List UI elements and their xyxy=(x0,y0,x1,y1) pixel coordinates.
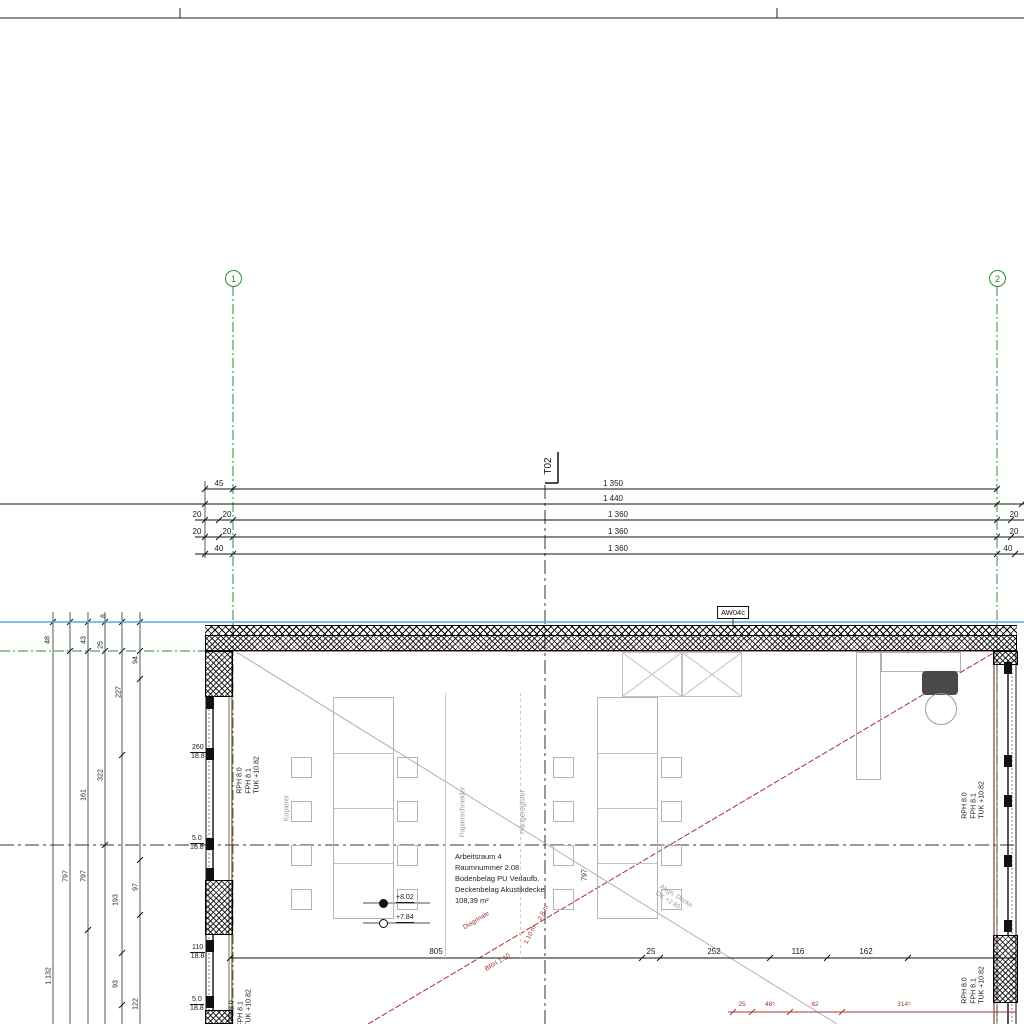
grid-axis-bubble-2: 2 xyxy=(989,270,1006,287)
window-frame xyxy=(206,868,214,880)
dim-label: 20 xyxy=(193,511,202,519)
chain-dim: 122 xyxy=(133,998,140,1010)
window-frame xyxy=(1004,795,1012,807)
dim-label: 1 360 xyxy=(608,511,628,519)
sill-bottom: 18.8 xyxy=(190,953,205,961)
wall-label-line: TUK +10.82 xyxy=(978,966,987,1004)
wall-height-label: RPH 8.0 FPH 8.1 TUK +10.82 xyxy=(236,756,262,794)
window-frame xyxy=(1004,662,1012,674)
projection-line xyxy=(445,693,446,958)
level-value-rfl: +7.84 xyxy=(396,914,414,923)
chain-dim: 43 xyxy=(81,636,88,644)
sill-note: 110 18.8 xyxy=(190,944,205,961)
sill-note: 5.0 18.8 xyxy=(190,996,204,1013)
room-ceiling: Deckenbelag Akustikdecke xyxy=(455,884,545,895)
window-frame xyxy=(206,838,214,850)
sill-top: 110 xyxy=(190,944,205,953)
section-label: T02 xyxy=(544,457,554,474)
sill-bottom: 18.8 xyxy=(190,844,204,852)
chain-dim: 25 xyxy=(98,641,105,649)
sill-top: 260 xyxy=(190,744,206,753)
red-dim: 314⁵ xyxy=(897,1002,911,1009)
equipment-label-copier: Kopierer xyxy=(284,795,291,821)
window-frame xyxy=(206,996,214,1008)
sill-note: 260 18.8 xyxy=(190,744,206,761)
chain-dim: 227 xyxy=(116,686,123,698)
chair xyxy=(291,845,312,866)
wall-type-tag: AW04c xyxy=(717,606,749,619)
dim-label: 20 xyxy=(223,528,232,536)
desk xyxy=(881,652,961,672)
grid-axis-bubble-1: 1 xyxy=(225,270,242,287)
right-wall-pillar-bottom xyxy=(993,935,1018,1003)
wall-label-line: RPH 8.0 xyxy=(228,989,237,1024)
chain-dim: 797 xyxy=(63,870,70,882)
wall-label-line: FPH 8.1 xyxy=(970,781,979,819)
dim-label: 805 xyxy=(429,948,442,956)
wall-label-line: FPH 8.1 xyxy=(970,966,979,1004)
dim-label: 40 xyxy=(1004,545,1013,553)
dim-label: 20 xyxy=(223,511,232,519)
interior-dim: 797 xyxy=(582,869,589,881)
ceiling-panel-x xyxy=(682,652,742,697)
sill-bottom: 18.8 xyxy=(190,1005,204,1013)
chair xyxy=(553,845,574,866)
axis-2-number: 2 xyxy=(995,274,1000,284)
room-number: Raumnummer 2.08 xyxy=(455,862,545,873)
red-dim: 82 xyxy=(811,1002,818,1009)
wall-label-line: TUK +10.82 xyxy=(253,756,262,794)
chain-dim: 1 132 xyxy=(46,967,53,985)
chain-dim: 8 xyxy=(101,614,108,618)
left-wall-pillar-top xyxy=(205,651,233,697)
dim-label: 20 xyxy=(1010,528,1019,536)
office-chair-seat xyxy=(922,671,958,695)
dim-label: 162 xyxy=(859,948,872,956)
window-frame xyxy=(1004,920,1012,932)
chair xyxy=(397,757,418,778)
dim-label: 252 xyxy=(707,948,720,956)
chain-dim: 193 xyxy=(113,894,120,906)
sill-note: 5.0 18.8 xyxy=(190,835,204,852)
wall-height-label: RPH 8.0 FPH 8.1 TUK +10.82 xyxy=(228,989,254,1024)
floor-plan-canvas: 1 2 T02 AW04c 45 1 350 1 440 20 20 1 360… xyxy=(0,0,1024,1024)
room-name: Arbeitsraum 4 xyxy=(455,851,545,862)
axis-1-number: 1 xyxy=(231,274,236,284)
wall-height-label: RPH 8.0 FPH 8.1 TUK +10.82 xyxy=(961,781,987,819)
wall-label-line: RPH 8.0 xyxy=(236,756,245,794)
equipment-label-board: Hängeregister xyxy=(520,790,527,834)
table-block-left xyxy=(333,697,394,919)
room-area: 108,39 m² xyxy=(455,895,545,906)
chair xyxy=(661,757,682,778)
chain-dim: 94 xyxy=(133,656,140,664)
equipment-label-cutter: Papierschneider xyxy=(460,787,467,838)
window-frame xyxy=(206,940,214,952)
level-value-ffl: +8.02 xyxy=(396,894,414,903)
chair xyxy=(291,801,312,822)
chain-dim: 161 xyxy=(81,789,88,801)
window-frame xyxy=(206,697,214,709)
left-wall-pillar-mid xyxy=(205,880,233,935)
sill-bottom: 18.8 xyxy=(190,753,206,761)
chain-dim: 322 xyxy=(98,769,105,781)
dim-label: 25 xyxy=(647,948,656,956)
window-frame xyxy=(1004,855,1012,867)
red-dim: 25 xyxy=(738,1002,745,1009)
red-dim: 48⁵ xyxy=(765,1002,775,1009)
chair xyxy=(397,845,418,866)
wall-label-line: TUK +10.82 xyxy=(978,781,987,819)
wall-label-line: TUK +10.82 xyxy=(245,989,254,1024)
dim-label: 116 xyxy=(792,948,805,956)
wall-height-label: RPH 8.0 FPH 8.1 TUK +10.82 xyxy=(961,966,987,1004)
wall-label-line: RPH 8.0 xyxy=(961,966,970,1004)
chair xyxy=(397,801,418,822)
chain-dim: 93 xyxy=(113,980,120,988)
top-wall-insulation xyxy=(205,625,1017,635)
dim-label: 40 xyxy=(215,545,224,553)
chair xyxy=(553,801,574,822)
sill-top: 5.0 xyxy=(190,996,204,1005)
wall-label-line: FPH 8.1 xyxy=(237,989,246,1024)
sideboard xyxy=(856,652,881,780)
top-wall-masonry xyxy=(205,635,1017,651)
wall-label-line: RPH 8.0 xyxy=(961,781,970,819)
dim-label: 1 350 xyxy=(603,480,623,488)
room-stamp: Arbeitsraum 4 Raumnummer 2.08 Bodenbelag… xyxy=(455,851,545,906)
dim-label: 20 xyxy=(193,528,202,536)
chair xyxy=(291,889,312,910)
dim-label: 1 360 xyxy=(608,545,628,553)
window-frame xyxy=(1004,755,1012,767)
chair xyxy=(553,757,574,778)
wall-label-line: FPH 8.1 xyxy=(245,756,254,794)
dim-label: 20 xyxy=(1010,511,1019,519)
level-marker-icon xyxy=(379,899,388,908)
window-frame xyxy=(206,748,214,760)
chain-dim: 97 xyxy=(133,883,140,891)
dim-label: 1 360 xyxy=(608,528,628,536)
chain-dim: 797 xyxy=(81,870,88,882)
chair xyxy=(661,801,682,822)
level-marker-icon xyxy=(379,919,388,928)
room-floor: Bodenbelag PU Verlaufb. xyxy=(455,873,545,884)
dim-label: 45 xyxy=(215,480,224,488)
ceiling-panel-x xyxy=(622,652,682,697)
table-block-right xyxy=(597,697,658,919)
office-chair-base xyxy=(925,693,957,725)
chain-dim: 48 xyxy=(45,636,52,644)
chair xyxy=(661,845,682,866)
sill-top: 5.0 xyxy=(190,835,204,844)
chair xyxy=(291,757,312,778)
chair xyxy=(553,889,574,910)
dim-label: 1 440 xyxy=(603,495,623,503)
